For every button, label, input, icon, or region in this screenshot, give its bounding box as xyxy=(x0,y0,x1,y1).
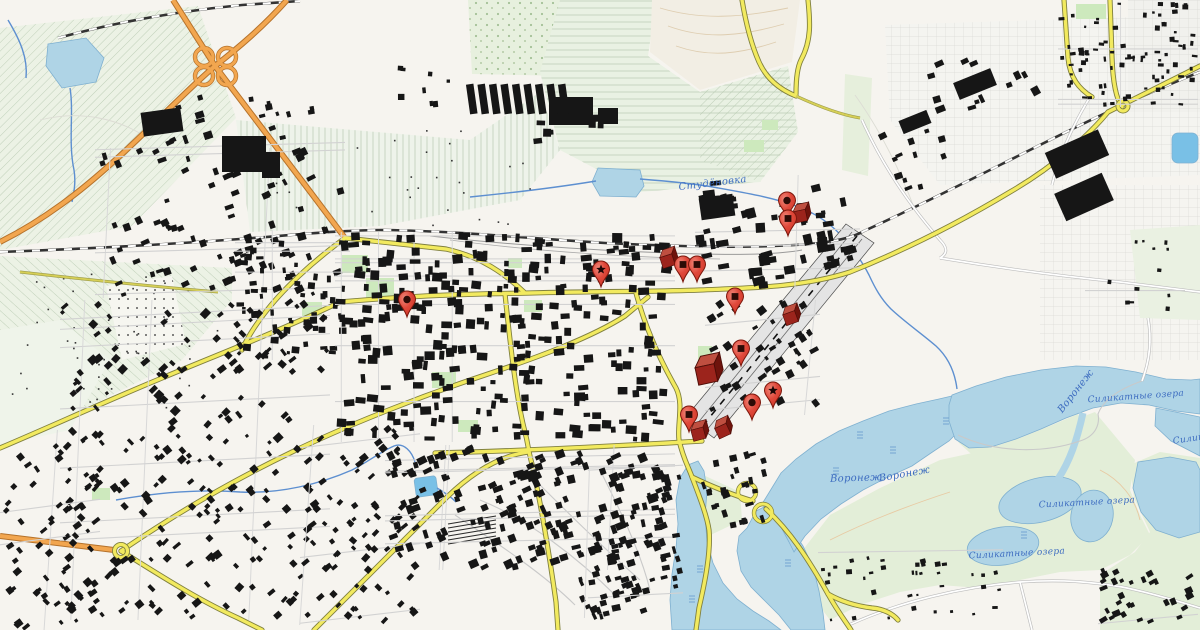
water-label: Воронеж xyxy=(829,472,882,485)
map-canvas[interactable]: СтудёновкаВоронежВоронежВоронежСиликатны… xyxy=(0,0,1200,630)
topographic-map[interactable]: СтудёновкаВоронежВоронежВоронежСиликатны… xyxy=(0,0,1200,630)
